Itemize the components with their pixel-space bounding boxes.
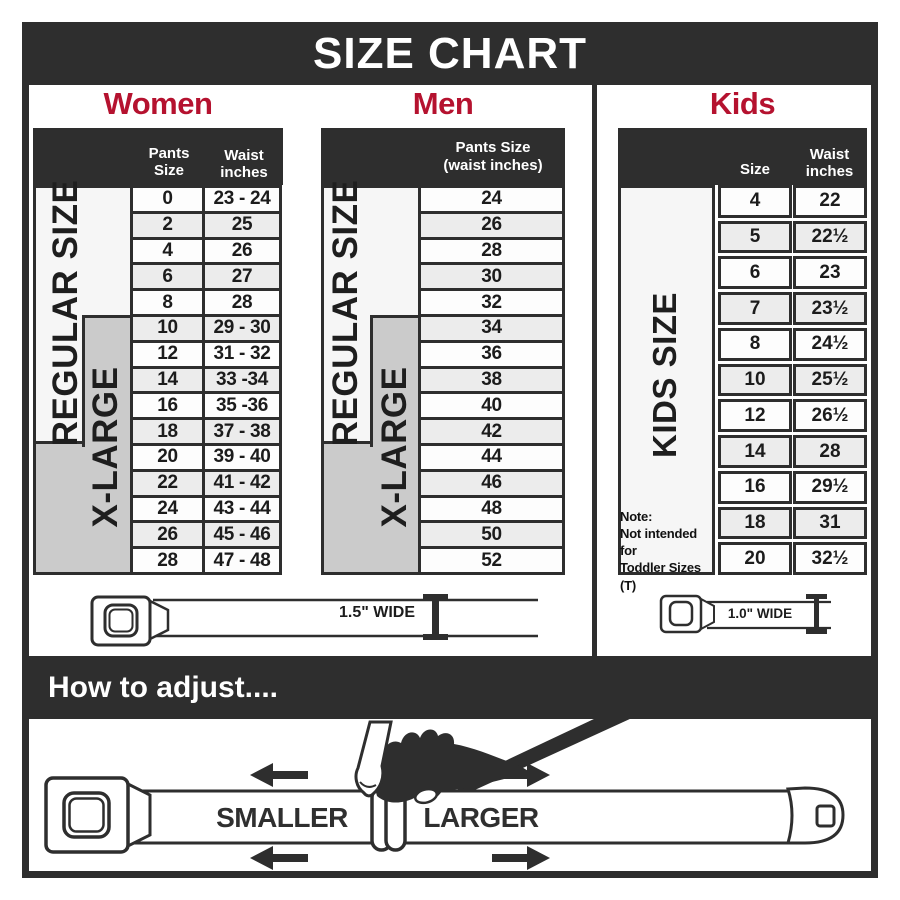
adult-belt-illustration [85,588,555,650]
kids-size-label: KIDS SIZE [645,245,685,505]
waist-cell: 23½ [793,292,867,325]
size-cell: 12 [718,399,792,432]
waist-cell: 35 -36 [205,394,279,417]
size-cell: 20 [718,542,792,575]
waist-cell: 47 - 48 [205,549,279,572]
waist-cell: 46 [421,472,562,495]
page-title: SIZE CHART [313,29,587,79]
waist-cell: 26 [421,214,562,237]
men-xlarge-label: X-LARGE [375,342,415,552]
size-cell: 8 [133,291,202,314]
waist-cell: 38 [421,369,562,392]
waist-cell: 44 [421,446,562,469]
women-xlarge-label: X-LARGE [86,342,126,552]
waist-cell: 27 [205,265,279,288]
size-cell: 10 [718,364,792,397]
kids-belt-width-label: 1.0" WIDE [712,606,808,621]
larger-label: LARGER [401,802,561,834]
kids-heading: Kids [618,86,867,122]
size-cell: 10 [133,317,202,340]
waist-cell: 31 - 32 [205,343,279,366]
waist-cell: 33 -34 [205,369,279,392]
men-zone-divider [370,315,373,447]
waist-cell: 41 - 42 [205,472,279,495]
waist-cell: 31 [793,507,867,540]
women-regular-size-label: REGULAR SIZE [46,183,86,443]
arrow-left-icon [250,845,308,871]
size-cell: 6 [133,265,202,288]
arrow-right-icon [492,762,550,788]
waist-cell: 29 - 30 [205,317,279,340]
waist-cell: 26 [205,240,279,263]
waist-cell: 43 - 44 [205,498,279,521]
women-size-column-header: Pants Size [133,128,205,180]
size-cell: 6 [718,256,792,289]
size-cell: 28 [133,549,202,572]
waist-cell: 36 [421,343,562,366]
size-cell: 2 [133,214,202,237]
frame-bottom [22,871,878,878]
size-cell: 5 [718,221,792,254]
how-to-adjust-title: How to adjust.... [22,671,278,705]
belt-tip [788,788,843,843]
seatbelt-buckle-icon [92,597,168,645]
frame-right [871,85,878,878]
kids-size-column-header: Size [718,128,792,179]
waist-cell: 34 [421,317,562,340]
waist-cell: 24½ [793,328,867,361]
men-zone-divider [370,315,418,318]
women-waist-column-header: Waist inches [205,128,283,182]
men-table-header: Pants Size (waist inches) [321,128,565,185]
size-cell: 4 [718,185,792,218]
kids-note: Note: Not intended for Toddler Sizes (T) [620,508,717,594]
size-chart-infographic: SIZE CHART Women Men Kids Pants Size Wai… [0,0,900,900]
kids-size-column: 4 5 6 7 8 10 12 14 16 18 20 [718,185,792,575]
size-cell: 24 [133,498,202,521]
waist-cell: 32½ [793,542,867,575]
size-cell: 4 [133,240,202,263]
women-heading: Women [33,86,283,122]
waist-cell: 30 [421,265,562,288]
waist-cell: 45 - 46 [205,523,279,546]
waist-cell: 37 - 38 [205,420,279,443]
size-cell: 16 [718,471,792,504]
waist-cell: 23 [793,256,867,289]
women-zone-divider [82,315,130,318]
size-cell: 12 [133,343,202,366]
waist-cell: 23 - 24 [205,188,279,211]
seatbelt-buckle-icon [46,778,150,852]
men-heading: Men [321,86,565,122]
waist-cell: 22½ [793,221,867,254]
waist-cell: 28 [205,291,279,314]
men-size-table: 24 26 28 30 32 34 36 38 40 42 44 46 48 5… [418,185,565,575]
waist-cell: 42 [421,420,562,443]
waist-cell: 40 [421,394,562,417]
kids-table-header: Size Waist inches [618,128,867,185]
kids-waist-column: 22 22½ 23 23½ 24½ 25½ 26½ 28 29½ 31 32½ [793,185,867,575]
size-cell: 16 [133,394,202,417]
waist-cell: 50 [421,523,562,546]
waist-cell: 22 [793,185,867,218]
women-size-table: 023 - 24 225 426 627 828 1029 - 30 1231 … [130,185,282,575]
frame-left [22,85,29,878]
waist-cell: 25½ [793,364,867,397]
waist-cell: 39 - 40 [205,446,279,469]
title-bar: SIZE CHART [22,22,878,85]
size-cell: 18 [718,507,792,540]
panel-divider [592,85,597,656]
men-regular-size-label: REGULAR SIZE [326,183,366,443]
men-column-header: Pants Size (waist inches) [421,128,565,185]
waist-cell: 25 [205,214,279,237]
size-cell: 14 [718,435,792,468]
arrow-left-icon [250,762,308,788]
waist-cell: 24 [421,188,562,211]
waist-cell: 32 [421,291,562,314]
women-table-header: Pants Size Waist inches [33,128,283,185]
waist-cell: 52 [421,549,562,572]
belt-adjust-illustration [30,716,870,872]
waist-cell: 26½ [793,399,867,432]
smaller-label: SMALLER [202,802,362,834]
how-to-adjust-bar: How to adjust.... [22,656,878,719]
arrow-right-icon [492,845,550,871]
size-cell: 0 [133,188,202,211]
size-cell: 26 [133,523,202,546]
size-cell: 14 [133,369,202,392]
waist-cell: 29½ [793,471,867,504]
size-cell: 8 [718,328,792,361]
waist-cell: 48 [421,498,562,521]
size-cell: 7 [718,292,792,325]
waist-cell: 28 [793,435,867,468]
kids-waist-column-header: Waist inches [792,128,867,181]
size-cell: 20 [133,446,202,469]
waist-cell: 28 [421,240,562,263]
adult-belt-width-label: 1.5" WIDE [327,604,427,622]
size-cell: 22 [133,472,202,495]
seatbelt-buckle-icon [661,596,714,632]
size-cell: 18 [133,420,202,443]
